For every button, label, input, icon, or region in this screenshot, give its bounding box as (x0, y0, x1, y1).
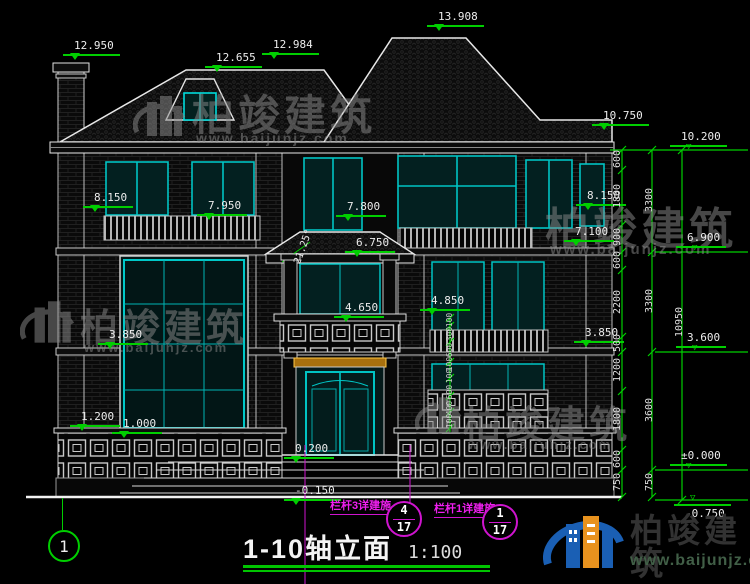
elevation-label: 7.950 (197, 200, 247, 216)
watermark (20, 293, 76, 357)
balcony-railing-3f-left (104, 216, 260, 240)
elevation-label: 1.000 (112, 418, 162, 434)
elevation-label: 13.908 (427, 11, 484, 27)
elevation-label: -0.150 (284, 485, 341, 501)
elevation-label: 4.650 (334, 302, 384, 318)
axis-line (62, 498, 63, 530)
elevation-label: 3.850 (98, 329, 148, 345)
title-underline (243, 565, 490, 568)
elevation-label: 0.200 (284, 443, 334, 459)
elevation-label: 8.150 (83, 192, 133, 208)
brand-name: 柏竣建筑 (630, 514, 750, 580)
railing-detail-label: 栏杆3详建施 (330, 500, 391, 515)
elevation-label: 7.800 (336, 201, 386, 217)
dim-value: 3300 (645, 283, 655, 319)
watermark (133, 88, 187, 150)
watermark-url: www.baijunjz.com (196, 130, 349, 147)
watermark (415, 390, 463, 446)
axis-bubble: 1 (48, 530, 80, 562)
brand-logo-icon (133, 88, 187, 146)
elevation-label: 6.750 (345, 237, 395, 253)
brand-logo (542, 506, 628, 584)
dim-value: 750 (645, 464, 655, 500)
dim-value: 3300 (645, 182, 655, 218)
brand-logo-icon (542, 506, 628, 580)
elevation-label: 10.200 (670, 131, 727, 147)
dim-value: 2200 (613, 284, 623, 320)
dim-value: 600 (613, 141, 623, 177)
cad-elevation-sheet: 柏竣建筑 www.baijunjz.com 柏竣建筑 www.baijunjz.… (0, 0, 750, 584)
detail-number: 4 (393, 504, 414, 519)
dim-value: 3600 (645, 392, 655, 428)
elevation-label: 12.655 (205, 52, 262, 68)
watermark-url: www.baijunjz.com (468, 437, 612, 453)
detail-number: 1 (489, 507, 510, 522)
elevation-label: ±0.000 (670, 450, 727, 466)
dim-value: 100 (446, 407, 454, 435)
brand-logo-icon (415, 390, 463, 442)
elevation-label: 12.984 (262, 39, 319, 55)
brand-logo-icon (20, 293, 76, 353)
dim-value: 750 (613, 464, 623, 500)
axis-number: 1 (59, 537, 69, 556)
drawing-title: 1-10轴立面1:100 (243, 536, 462, 563)
detail-sheet: 17 (493, 523, 507, 537)
dim-value: 600 (613, 242, 623, 278)
elevation-label: 12.950 (63, 40, 120, 56)
detail-bubble: 4 17 (386, 501, 422, 537)
title-text: 1-10轴立面 (243, 534, 392, 564)
dim-value: 10950 (675, 304, 685, 340)
balcony-railing-3f-right (400, 228, 532, 248)
title-scale: 1:100 (408, 542, 462, 563)
title-underline (243, 570, 490, 572)
dim-value: 1800 (613, 401, 623, 437)
elevation-label: 6.900 (676, 232, 726, 248)
elevation-label: 7.100 (564, 226, 614, 242)
dim-value: 1800 (613, 178, 623, 214)
brand-url: www.baijunjz.com (630, 553, 750, 569)
detail-sheet: 17 (397, 520, 411, 534)
elevation-label: 10.750 (592, 110, 649, 126)
detail-bubble: 1 17 (482, 504, 518, 540)
dim-value: 1200 (613, 352, 623, 388)
